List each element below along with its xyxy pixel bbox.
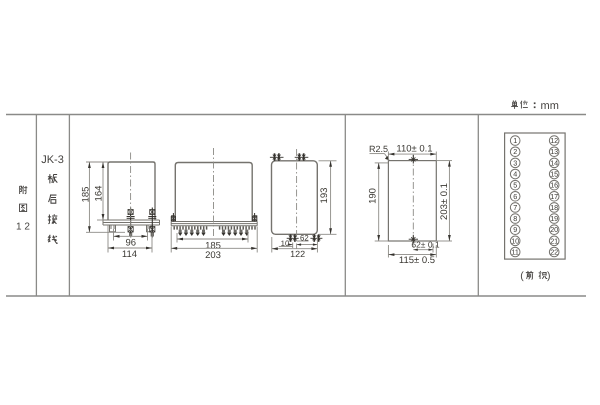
- svg-text:14: 14: [550, 158, 558, 167]
- svg-text:5: 5: [513, 181, 517, 190]
- svg-text:1: 1: [513, 136, 517, 145]
- svg-text:96: 96: [126, 238, 137, 249]
- svg-text:62± 0.1: 62± 0.1: [411, 240, 440, 250]
- svg-text:62: 62: [300, 234, 309, 243]
- svg-text:6: 6: [513, 192, 517, 201]
- svg-text:203± 0.1: 203± 0.1: [439, 183, 450, 220]
- svg-text:12: 12: [550, 136, 558, 145]
- svg-text:10: 10: [511, 236, 519, 245]
- svg-text:164: 164: [94, 186, 105, 202]
- svg-text:22: 22: [550, 248, 558, 257]
- svg-text:13: 13: [550, 147, 558, 156]
- svg-text:19: 19: [550, 214, 558, 223]
- svg-text:21: 21: [550, 236, 558, 245]
- svg-text:8: 8: [513, 214, 517, 223]
- svg-text:114: 114: [122, 249, 137, 260]
- svg-text:190: 190: [367, 188, 378, 204]
- svg-text:9: 9: [513, 225, 517, 234]
- svg-text:203: 203: [205, 250, 221, 261]
- svg-text:3: 3: [513, 158, 517, 167]
- svg-text:15: 15: [550, 170, 558, 179]
- svg-text:185: 185: [80, 187, 91, 203]
- svg-text:11: 11: [511, 248, 518, 257]
- svg-text:JK-3: JK-3: [41, 154, 64, 166]
- svg-text:2: 2: [513, 147, 517, 156]
- svg-text:16: 16: [550, 181, 558, 190]
- svg-text:): ): [547, 270, 551, 282]
- svg-text:20: 20: [550, 225, 558, 234]
- svg-text:122: 122: [290, 249, 305, 259]
- svg-text:(: (: [520, 270, 524, 282]
- svg-text:4: 4: [513, 170, 517, 179]
- svg-text:1 2: 1 2: [16, 222, 30, 233]
- svg-text:18: 18: [550, 203, 558, 212]
- svg-text:17: 17: [550, 192, 558, 201]
- svg-text:7: 7: [513, 203, 517, 212]
- svg-text:10: 10: [281, 239, 290, 248]
- svg-text:110± 0.1: 110± 0.1: [396, 143, 432, 154]
- svg-text:mm: mm: [541, 100, 559, 112]
- svg-text:R2.5: R2.5: [369, 144, 388, 154]
- svg-text:115± 0.5: 115± 0.5: [399, 255, 435, 266]
- svg-text:193: 193: [319, 188, 330, 204]
